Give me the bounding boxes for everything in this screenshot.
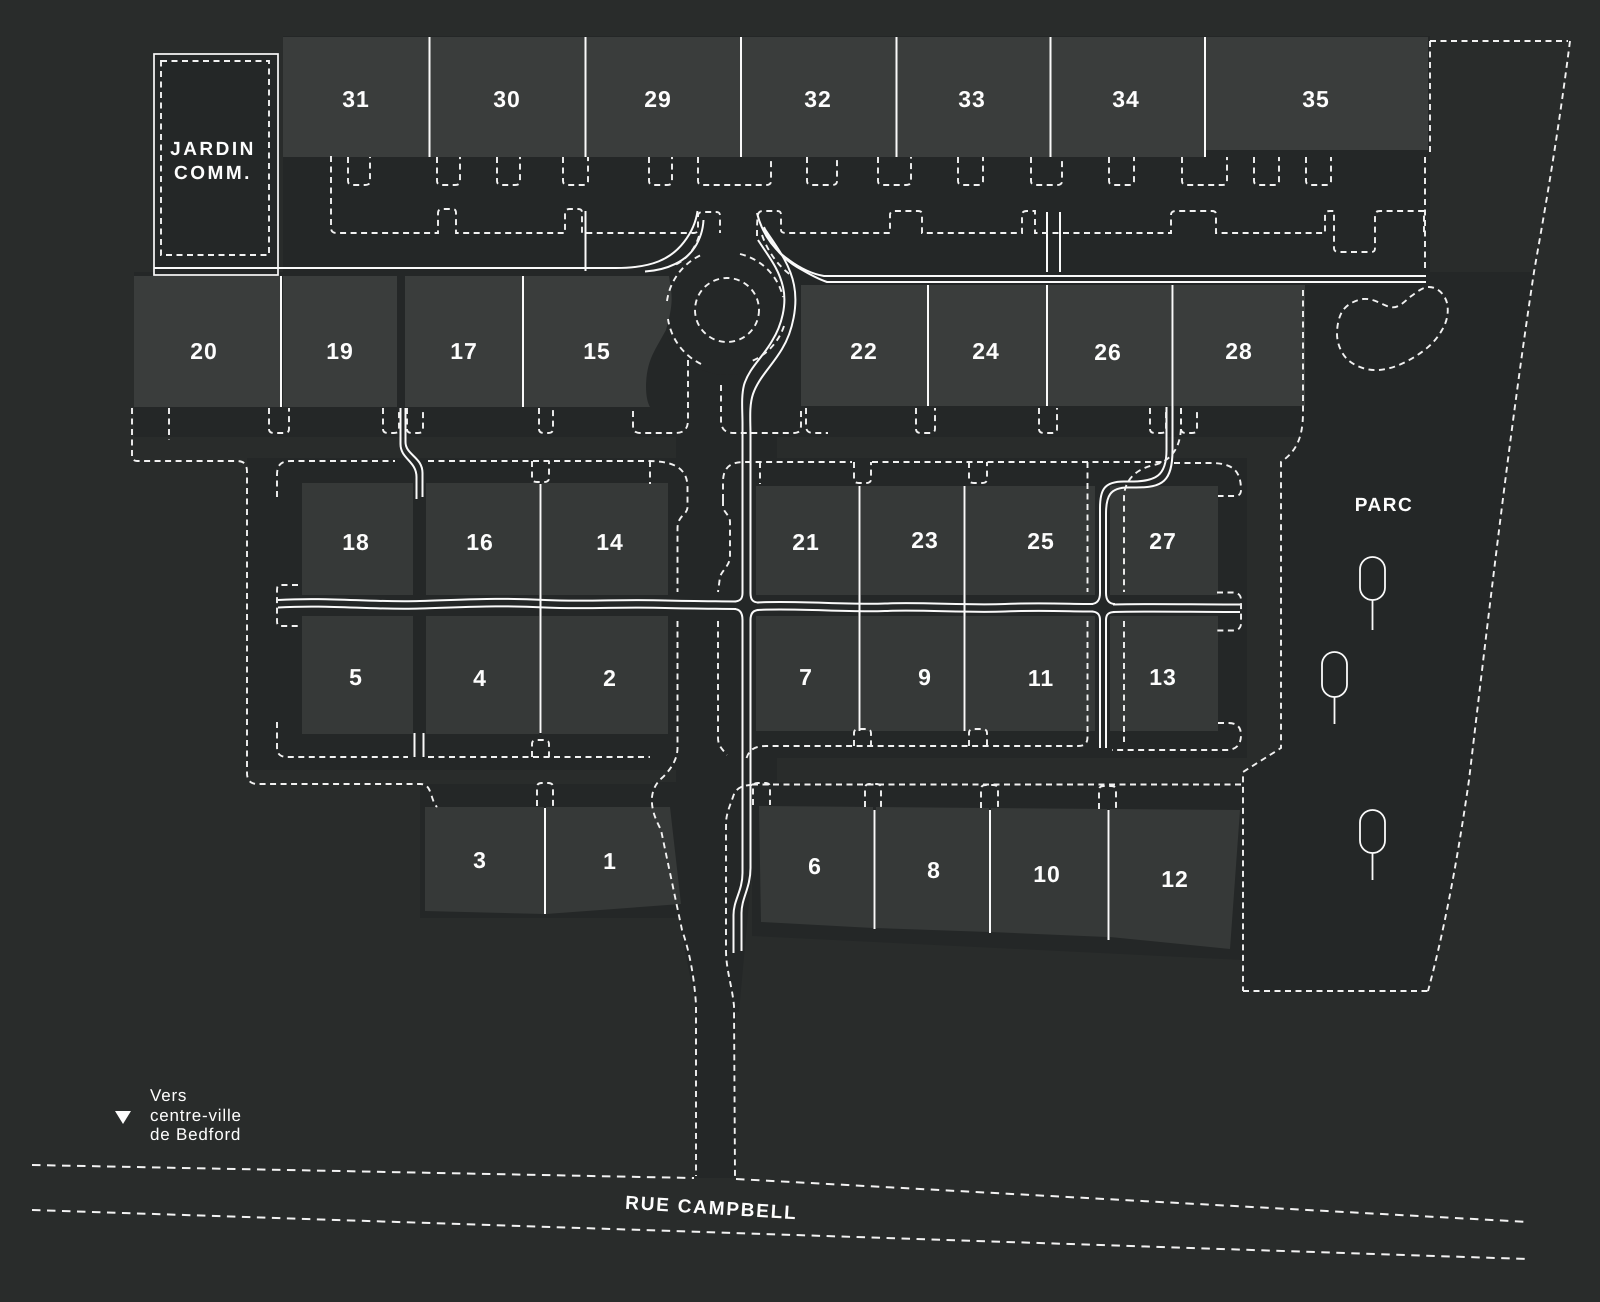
- svg-text:21: 21: [792, 529, 820, 555]
- svg-text:JARDIN: JARDIN: [170, 139, 256, 160]
- svg-text:7: 7: [799, 664, 813, 690]
- svg-text:14: 14: [596, 529, 624, 555]
- svg-text:8: 8: [927, 857, 941, 883]
- svg-text:20: 20: [190, 338, 218, 364]
- svg-text:31: 31: [342, 86, 370, 112]
- svg-text:13: 13: [1149, 664, 1177, 690]
- svg-text:34: 34: [1112, 86, 1140, 112]
- svg-text:9: 9: [918, 664, 932, 690]
- svg-text:Vers: Vers: [150, 1086, 187, 1105]
- svg-text:18: 18: [342, 529, 370, 555]
- svg-text:COMM.: COMM.: [174, 163, 252, 184]
- svg-text:24: 24: [972, 338, 1000, 364]
- svg-text:12: 12: [1161, 866, 1189, 892]
- svg-text:32: 32: [804, 86, 832, 112]
- svg-text:5: 5: [349, 664, 363, 690]
- svg-text:19: 19: [326, 338, 354, 364]
- svg-text:26: 26: [1094, 339, 1122, 365]
- svg-text:22: 22: [850, 338, 878, 364]
- svg-text:11: 11: [1028, 665, 1054, 691]
- svg-text:1: 1: [603, 848, 617, 874]
- svg-text:27: 27: [1149, 528, 1177, 554]
- svg-text:PARC: PARC: [1355, 495, 1413, 516]
- svg-text:30: 30: [493, 86, 521, 112]
- svg-text:33: 33: [958, 86, 986, 112]
- svg-text:15: 15: [583, 338, 611, 364]
- svg-text:35: 35: [1302, 86, 1330, 112]
- svg-text:3: 3: [473, 847, 487, 873]
- svg-text:centre-ville: centre-ville: [150, 1106, 242, 1125]
- svg-text:10: 10: [1033, 861, 1061, 887]
- svg-text:29: 29: [644, 86, 672, 112]
- svg-text:16: 16: [466, 529, 494, 555]
- svg-text:2: 2: [603, 665, 617, 691]
- svg-text:23: 23: [911, 527, 939, 553]
- svg-text:25: 25: [1027, 528, 1055, 554]
- svg-text:6: 6: [808, 853, 822, 879]
- svg-text:28: 28: [1225, 338, 1253, 364]
- svg-text:de Bedford: de Bedford: [150, 1125, 241, 1144]
- svg-text:4: 4: [473, 665, 487, 691]
- svg-text:17: 17: [450, 338, 478, 364]
